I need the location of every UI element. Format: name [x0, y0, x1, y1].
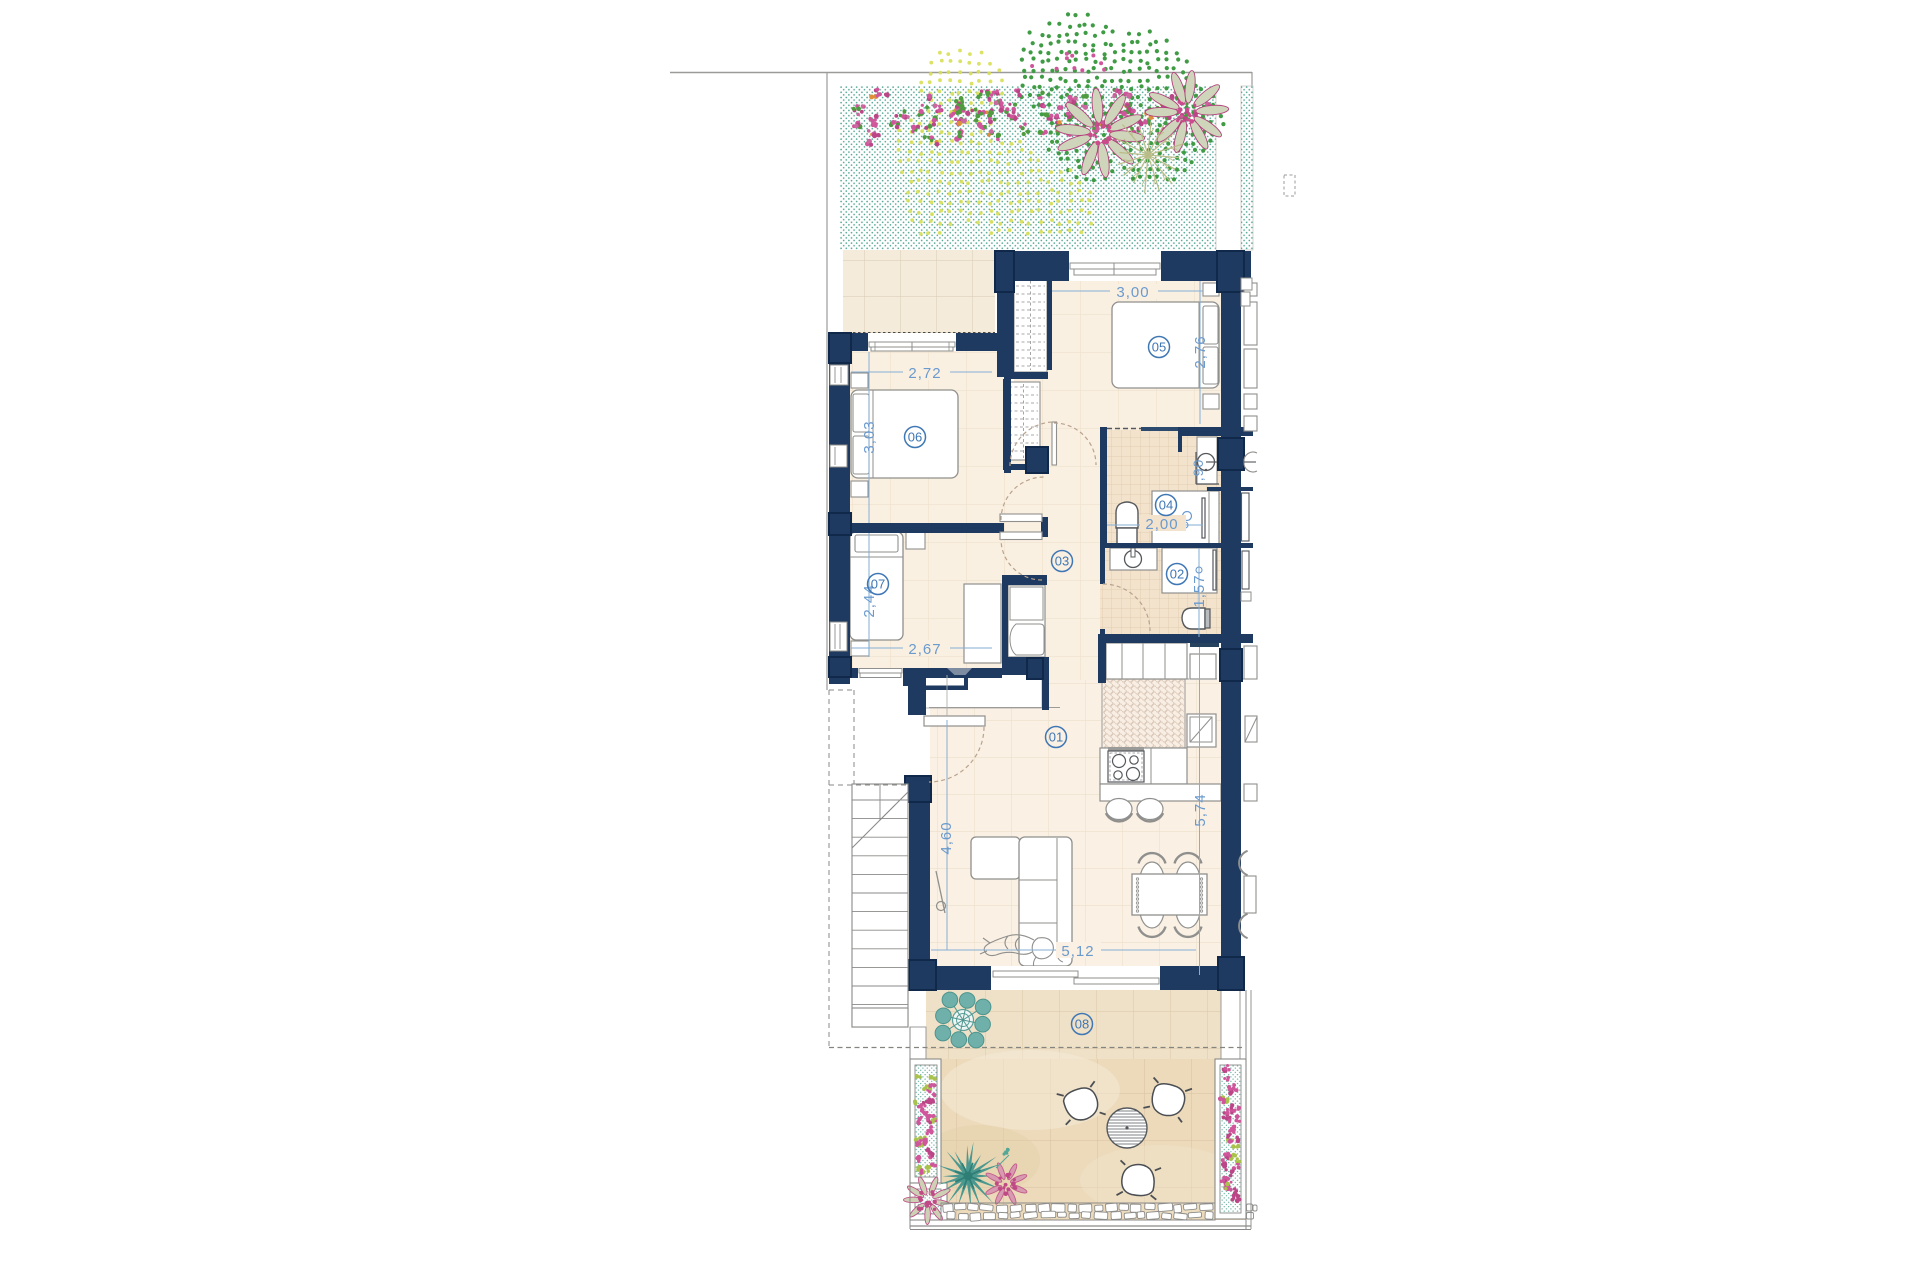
svg-text:02: 02	[1170, 567, 1184, 582]
svg-text:06: 06	[908, 430, 922, 445]
svg-text:07: 07	[871, 577, 885, 592]
svg-text:2,00: 2,00	[1145, 516, 1178, 533]
svg-text:4,60: 4,60	[938, 821, 955, 854]
svg-text:1,57: 1,57	[1191, 574, 1208, 607]
svg-text:3,03: 3,03	[861, 420, 878, 453]
svg-text:01: 01	[1049, 730, 1063, 745]
svg-text:08: 08	[1075, 1017, 1089, 1032]
svg-text:2,76: 2,76	[1192, 335, 1209, 368]
svg-text:5,74: 5,74	[1192, 793, 1209, 826]
svg-text:2,67: 2,67	[908, 641, 941, 658]
svg-text:04: 04	[1159, 498, 1173, 513]
svg-text:03: 03	[1055, 554, 1069, 569]
svg-text:,90: ,90	[1190, 459, 1206, 481]
svg-text:2,72: 2,72	[908, 365, 941, 382]
svg-text:3,00: 3,00	[1116, 284, 1149, 301]
svg-text:05: 05	[1152, 340, 1166, 355]
svg-text:5,12: 5,12	[1061, 943, 1094, 960]
